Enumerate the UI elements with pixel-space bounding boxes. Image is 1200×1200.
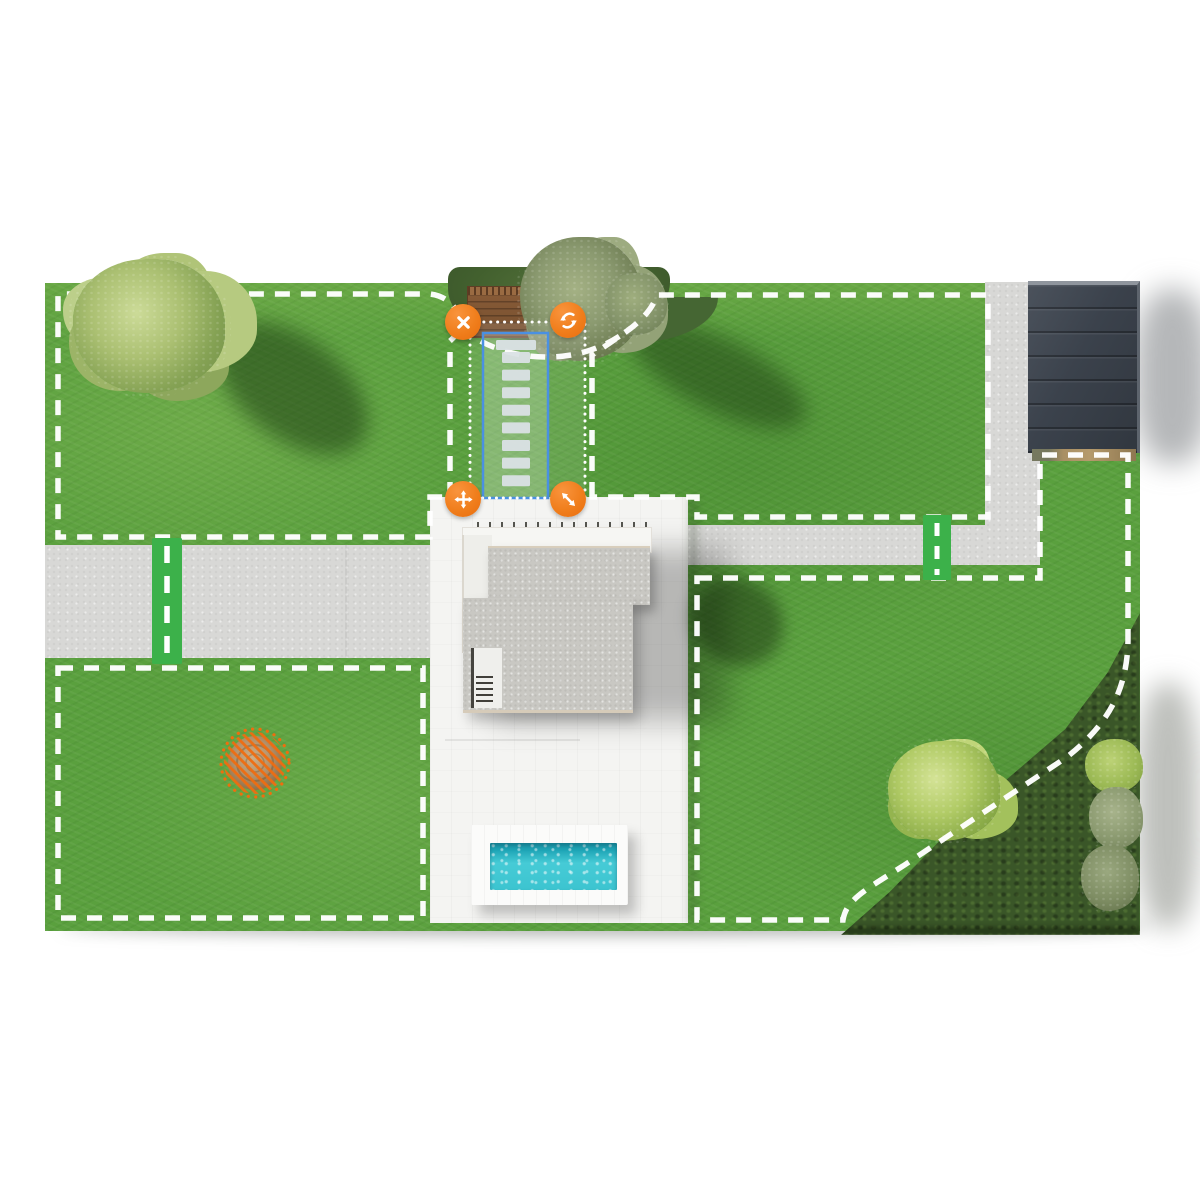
delete-zone-button[interactable] <box>445 304 481 340</box>
patio-joint <box>445 739 580 741</box>
pool-water <box>490 843 617 890</box>
bright-tree <box>888 741 1000 841</box>
olive-shrub <box>1081 845 1139 911</box>
resize-zone-button[interactable] <box>550 481 586 517</box>
olive-shrub <box>1089 787 1143 849</box>
paving-joint <box>165 545 167 658</box>
move-icon <box>454 490 473 509</box>
garage-shadow <box>1135 289 1200 464</box>
garage-roof <box>1028 281 1140 453</box>
small-tree <box>605 273 667 335</box>
paving-joint <box>345 545 347 658</box>
move-zone-button[interactable] <box>445 481 481 517</box>
resize-icon <box>559 490 578 509</box>
garden-map <box>45 283 1140 931</box>
garage-wood-edge <box>1032 449 1136 461</box>
house-stairs <box>471 648 502 708</box>
left-walkway <box>45 545 430 658</box>
close-icon <box>454 313 473 332</box>
large-tree <box>73 259 225 393</box>
house-upper-block <box>488 546 650 605</box>
garden-map-canvas <box>0 0 1200 1200</box>
rotate-zone-button[interactable] <box>550 302 586 338</box>
hedge-shadow <box>1137 683 1199 928</box>
rotate-icon <box>559 311 578 330</box>
